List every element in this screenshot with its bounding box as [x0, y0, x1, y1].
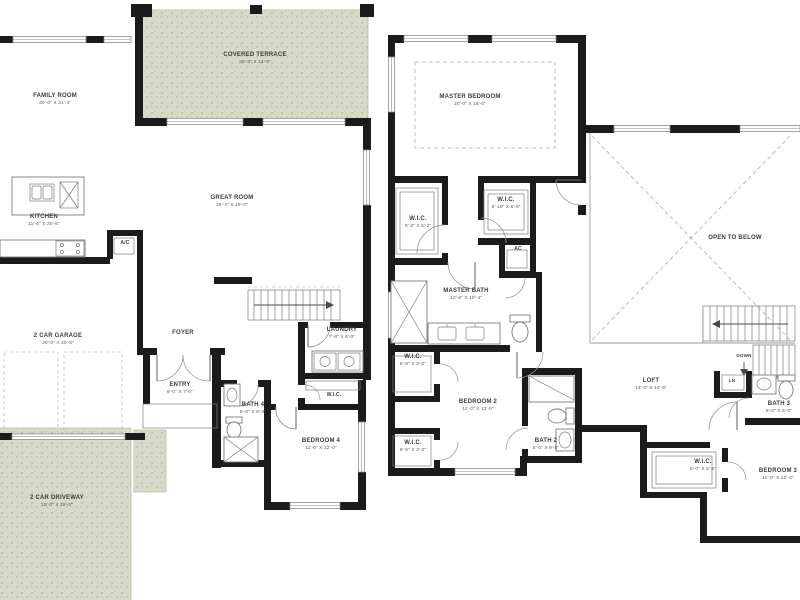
room-label-wic5: W.I.C.5'-0" X 5'-6" — [690, 459, 716, 472]
room-label-driveway: 2 CAR DRIVEWAY18'-0" X 18'-0" — [30, 495, 84, 508]
wic-ff-shelf — [306, 381, 360, 390]
entry-porch-slab — [143, 404, 217, 428]
window — [104, 37, 131, 43]
label-down: DOWN — [736, 353, 751, 359]
window — [492, 36, 556, 42]
master-toilet — [510, 315, 530, 342]
room-label-wic4: W.I.C.6'-5" X 3'-2" — [400, 440, 426, 453]
washer-dryer — [312, 351, 363, 372]
bath4-toilet — [226, 417, 242, 438]
room-label-great-room: GREAT ROOM26'-4" X 19'-0" — [211, 195, 254, 208]
wic-ff-door — [305, 385, 320, 400]
bath2-shower — [529, 376, 574, 402]
master-bedroom-door — [556, 180, 581, 205]
bath2-door — [506, 428, 528, 450]
parking-space-outline — [64, 352, 122, 432]
bath2-toilet — [548, 408, 574, 424]
room-label-wic1: W.I.C.9'-2" X 5'-2" — [405, 216, 431, 229]
window — [290, 503, 340, 509]
window — [404, 36, 468, 42]
master-shower — [391, 281, 427, 343]
window — [364, 150, 370, 205]
wic5-door — [728, 462, 746, 480]
window — [263, 119, 345, 125]
driveway-surface — [0, 428, 131, 600]
garage-door — [12, 434, 125, 440]
stair-direction-arrow — [254, 301, 334, 309]
kitchen-counter — [0, 240, 85, 257]
bath3-vanity — [752, 375, 776, 394]
dashed-features — [4, 62, 790, 432]
master-bath-door — [448, 262, 475, 289]
bath3-toilet — [778, 375, 795, 399]
wic4-door — [440, 442, 458, 460]
room-label-ac-ff: A/C — [120, 240, 129, 246]
window — [455, 469, 515, 475]
room-label-bath2: BATH 25'-0" X 9'-8" — [533, 438, 559, 451]
ac-unit-sf — [507, 250, 527, 268]
window — [359, 422, 365, 472]
room-label-foyer: FOYER — [172, 330, 194, 338]
bedroom4-door — [276, 407, 296, 429]
room-label-laundry: LAUNDRY7'-6" X 6'-0" — [327, 327, 358, 340]
window — [614, 126, 670, 132]
room-label-bedroom2: BEDROOM 211'-0" X 13'-0" — [459, 399, 497, 412]
room-label-garage: 2 CAR GARAGE20'-0" X 20'-0" — [34, 333, 82, 346]
room-label-wic3: W.I.C.6'-5" X 3'-2" — [400, 354, 426, 367]
label-linen: LN — [729, 378, 736, 384]
stair-direction-arrow — [712, 320, 788, 328]
window — [740, 126, 800, 132]
ac-door — [505, 278, 525, 298]
parking-space-outline — [4, 352, 58, 432]
room-label-bath3: BATH 38'-0" X 5'-0" — [766, 401, 792, 414]
master-vanity — [428, 323, 500, 344]
wic3-door — [440, 364, 458, 382]
stairs-second-floor — [590, 306, 795, 378]
room-label-wic2: W.I.C.5'-10" X 5'-8" — [491, 197, 520, 210]
bath4-vanity — [224, 384, 240, 406]
room-label-master-bath: MASTER BATH12'-6" X 10'-4" — [443, 288, 488, 301]
room-label-bedroom3: BEDROOM 311'-0" X 12'-4" — [759, 468, 797, 481]
room-label-entry: ENTRY9'-0" X 7'-0" — [167, 382, 193, 395]
room-label-covered-terrace: COVERED TERRACE26'-8" X 14'-0" — [223, 52, 286, 65]
bath3-door — [729, 398, 749, 418]
stairs-first-floor — [248, 287, 340, 320]
floor-plan-drawing — [0, 0, 800, 600]
room-label-loft: LOFT14'-0" X 10'-6" — [635, 378, 667, 391]
room-label-ac-sf: AC — [514, 246, 522, 252]
room-label-kitchen: KITCHEN11'-4" X 20'-6" — [28, 214, 59, 227]
room-label-wic-ff: W.I.C. — [327, 392, 342, 398]
bath4-shower — [224, 437, 258, 462]
room-label-bedroom4: BEDROOM 411'-0" X 12'-0" — [302, 438, 340, 451]
entry-double-door — [157, 355, 210, 381]
room-label-bath4: BATH 45'-0" X 9'-4" — [240, 402, 266, 415]
room-label-family-room: FAMILY ROOM20'-0" X 31'-4" — [33, 93, 77, 106]
window — [13, 37, 86, 43]
kitchen-island — [12, 177, 84, 215]
room-label-master-bedroom: MASTER BEDROOM20'-0" X 15'-0" — [439, 94, 500, 107]
window — [389, 57, 395, 112]
floor-plan-canvas: FAMILY ROOM20'-0" X 31'-4" COVERED TERRA… — [0, 0, 800, 600]
window — [167, 119, 243, 125]
label-open-to-below: OPEN TO BELOW — [708, 235, 762, 243]
